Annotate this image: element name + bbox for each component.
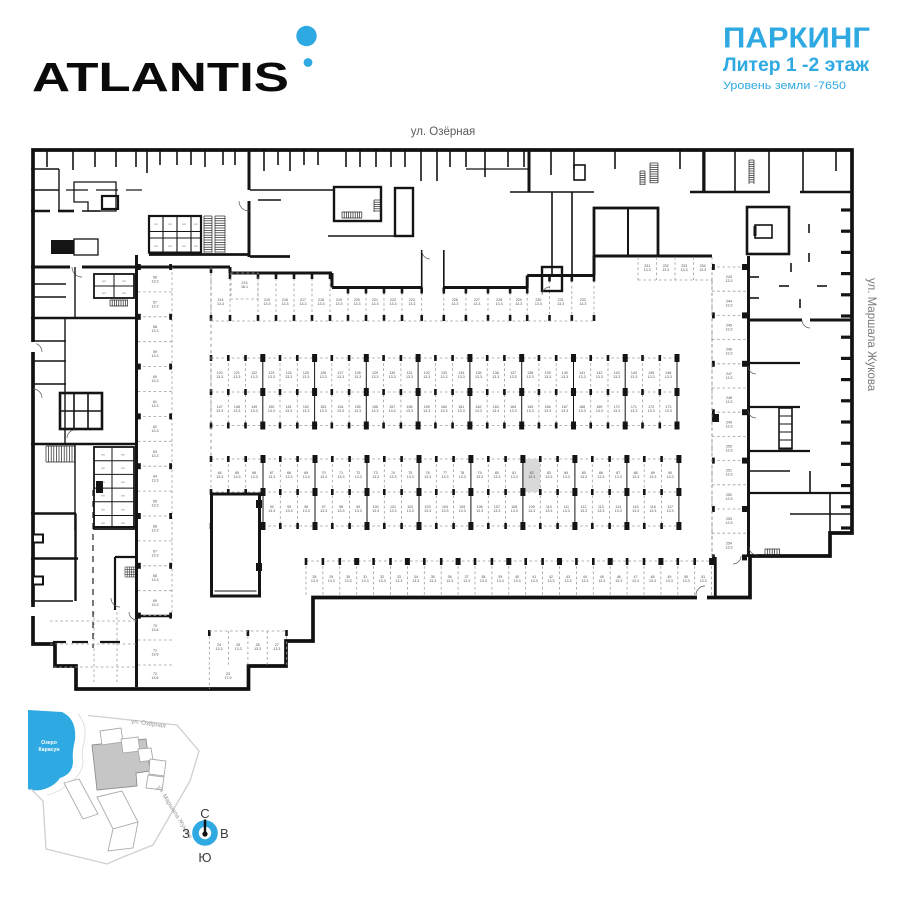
svg-text:13.3: 13.3 [216,375,223,379]
svg-text:13.3: 13.3 [251,409,258,413]
svg-text:13.3: 13.3 [514,579,521,583]
svg-text:кл: кл [183,222,186,226]
svg-text:13.3: 13.3 [510,375,517,379]
svg-text:ул. Маршала Жукова: ул. Маршала Жукова [865,278,877,392]
svg-text:13.3: 13.3 [535,302,542,306]
svg-text:13.3: 13.3 [496,302,503,306]
svg-text:13.3: 13.3 [511,509,518,513]
svg-text:13.3: 13.3 [286,509,293,513]
svg-text:13.3: 13.3 [613,375,620,379]
svg-text:13.3: 13.3 [580,509,587,513]
svg-text:13.3: 13.3 [355,475,362,479]
svg-text:13.3: 13.3 [251,475,258,479]
svg-text:13.3: 13.3 [563,509,570,513]
svg-text:13.3: 13.3 [216,475,223,479]
svg-text:13.3: 13.3 [152,529,159,533]
svg-text:13.3: 13.3 [234,475,241,479]
svg-text:13.3: 13.3 [355,509,362,513]
svg-text:13.3: 13.3 [476,509,483,513]
svg-text:13.3: 13.3 [152,354,159,358]
svg-text:13.3: 13.3 [667,475,674,479]
svg-text:13.3: 13.3 [152,279,159,283]
svg-text:13.3: 13.3 [459,475,466,479]
svg-text:13.3: 13.3 [320,475,327,479]
svg-text:В: В [220,826,229,841]
svg-text:13.3: 13.3 [531,579,538,583]
svg-text:13.3: 13.3 [544,375,551,379]
svg-text:кл: кл [122,291,125,295]
svg-text:13.3: 13.3 [581,579,588,583]
svg-text:13.3: 13.3 [648,375,655,379]
svg-text:13.3: 13.3 [463,579,470,583]
svg-text:13.3: 13.3 [441,409,448,413]
svg-text:13.3: 13.3 [451,302,458,306]
svg-text:13.3: 13.3 [303,475,310,479]
svg-text:13.3: 13.3 [390,475,397,479]
svg-text:13.3: 13.3 [338,475,345,479]
svg-text:Ю: Ю [198,850,211,865]
svg-text:13.3: 13.3 [726,376,733,380]
svg-text:кл: кл [121,507,124,511]
svg-text:13.3: 13.3 [336,302,343,306]
svg-text:13.3: 13.3 [726,521,733,525]
svg-text:13.3: 13.3 [389,375,396,379]
svg-text:13.3: 13.3 [497,579,504,583]
svg-text:13.3: 13.3 [424,475,431,479]
svg-text:13.3: 13.3 [345,579,352,583]
svg-text:13.3: 13.3 [152,404,159,408]
svg-text:13.3: 13.3 [320,509,327,513]
svg-text:13.3: 13.3 [475,375,482,379]
svg-text:13.3: 13.3 [545,475,552,479]
svg-text:кл: кл [183,244,186,248]
svg-text:кл: кл [101,494,104,498]
svg-text:13.3: 13.3 [268,409,275,413]
svg-text:13.3: 13.3 [407,475,414,479]
svg-text:17.9: 17.9 [225,676,232,680]
svg-text:13.3: 13.3 [338,509,345,513]
svg-text:Озеро: Озеро [41,740,57,746]
svg-text:13.3: 13.3 [311,579,318,583]
svg-text:13.3: 13.3 [492,375,499,379]
svg-text:13.3: 13.3 [273,647,280,651]
svg-text:13.3: 13.3 [528,475,535,479]
svg-text:13.3: 13.3 [254,647,261,651]
svg-text:13.3: 13.3 [152,553,159,557]
svg-text:13.3: 13.3 [216,409,223,413]
svg-text:13.3: 13.3 [493,475,500,479]
svg-text:13.3: 13.3 [152,504,159,508]
svg-text:кл: кл [101,453,104,457]
svg-text:ул. Озёрная: ул. Озёрная [411,126,476,138]
svg-text:13.3: 13.3 [152,479,159,483]
svg-text:13.3: 13.3 [597,509,604,513]
svg-text:13.3: 13.3 [598,579,605,583]
svg-text:13.3: 13.3 [726,303,733,307]
svg-text:13.3: 13.3 [648,409,655,413]
svg-text:13.3: 13.3 [726,424,733,428]
svg-text:кл: кл [101,521,104,525]
svg-text:13.3: 13.3 [649,579,656,583]
svg-text:13.3: 13.3 [649,509,656,513]
svg-text:13.3: 13.3 [372,475,379,479]
svg-text:кл: кл [122,279,125,283]
svg-text:13.3: 13.3 [665,409,672,413]
svg-text:13.3: 13.3 [473,302,480,306]
svg-text:13.3: 13.3 [372,509,379,513]
svg-text:13.3: 13.3 [328,579,335,583]
svg-text:13.3: 13.3 [372,302,379,306]
svg-text:13.3: 13.3 [726,449,733,453]
svg-text:13.6: 13.6 [152,653,159,657]
svg-text:13.3: 13.3 [557,302,564,306]
svg-text:13.3: 13.3 [683,579,690,583]
svg-text:13.3: 13.3 [286,475,293,479]
svg-text:13.3: 13.3 [318,302,325,306]
svg-text:13.3: 13.3 [492,409,499,413]
svg-text:13.3: 13.3 [216,647,223,651]
svg-text:13.3: 13.3 [527,375,534,379]
svg-text:13.3: 13.3 [615,579,622,583]
svg-text:кл: кл [101,480,104,484]
svg-text:13.3: 13.3 [528,509,535,513]
svg-text:ПАРКИНГ: ПАРКИНГ [723,23,870,55]
svg-text:13.3: 13.3 [320,409,327,413]
svg-text:13.3: 13.3 [662,268,669,272]
svg-text:13.3: 13.3 [580,475,587,479]
svg-text:13.3: 13.3 [389,409,396,413]
svg-text:13.3: 13.3 [726,497,733,501]
svg-text:13.3: 13.3 [630,375,637,379]
svg-text:13.3: 13.3 [379,579,386,583]
svg-text:13.3: 13.3 [726,400,733,404]
svg-text:13.3: 13.3 [476,475,483,479]
svg-text:13.3: 13.3 [665,375,672,379]
svg-text:13.3: 13.3 [441,375,448,379]
svg-text:13.3: 13.3 [233,409,240,413]
svg-text:13.3: 13.3 [632,475,639,479]
svg-text:З: З [182,826,190,841]
svg-text:кл: кл [121,480,124,484]
svg-text:13.3: 13.3 [337,409,344,413]
svg-text:13.3: 13.3 [579,302,586,306]
svg-text:13.3: 13.3 [726,352,733,356]
svg-text:13.3: 13.3 [565,579,572,583]
svg-text:13.3: 13.3 [510,409,517,413]
svg-text:13.3: 13.3 [700,579,707,583]
svg-text:кл: кл [101,507,104,511]
svg-text:13.3: 13.3 [152,329,159,333]
svg-text:13.3: 13.3 [152,379,159,383]
svg-text:13.3: 13.3 [515,302,522,306]
svg-text:13.3: 13.3 [423,409,430,413]
svg-text:кл: кл [169,222,172,226]
svg-text:13.3: 13.3 [152,429,159,433]
svg-text:13.3: 13.3 [152,304,159,308]
svg-text:13.3: 13.3 [233,375,240,379]
svg-text:13.3: 13.3 [459,509,466,513]
svg-text:13.3: 13.3 [632,579,639,583]
svg-text:кл: кл [101,466,104,470]
svg-text:13.3: 13.3 [545,509,552,513]
svg-text:Карасун: Карасун [38,747,59,753]
svg-text:13.3: 13.3 [264,302,271,306]
svg-text:13.3: 13.3 [597,475,604,479]
svg-text:13.3: 13.3 [320,375,327,379]
svg-text:ATLANTIS: ATLANTIS [32,54,289,100]
svg-text:13.3: 13.3 [152,578,159,582]
svg-text:13.3: 13.3 [561,375,568,379]
svg-text:13.3: 13.3 [561,409,568,413]
svg-text:13.3: 13.3 [300,302,307,306]
svg-text:13.3: 13.3 [285,375,292,379]
svg-text:13.3: 13.3 [726,328,733,332]
svg-text:13.3: 13.3 [726,279,733,283]
svg-text:13.3: 13.3 [423,375,430,379]
svg-text:13.3: 13.3 [666,579,673,583]
svg-text:кл: кл [121,494,124,498]
svg-text:13.3: 13.3 [493,509,500,513]
svg-text:13.3: 13.3 [480,579,487,583]
svg-text:13.3: 13.3 [681,268,688,272]
svg-text:кл: кл [121,466,124,470]
svg-text:13.3: 13.3 [548,579,555,583]
svg-text:13.3: 13.3 [303,509,310,513]
svg-text:13.3: 13.3 [615,509,622,513]
svg-text:13.3: 13.3 [235,647,242,651]
svg-text:13.3: 13.3 [372,409,379,413]
svg-text:13.3: 13.3 [615,475,622,479]
svg-text:кл: кл [155,222,158,226]
svg-text:13.3: 13.3 [285,409,292,413]
svg-text:кл: кл [155,244,158,248]
svg-text:13.3: 13.3 [726,473,733,477]
svg-text:13.3: 13.3 [630,409,637,413]
svg-text:13.3: 13.3 [699,268,706,272]
svg-text:13.3: 13.3 [596,409,603,413]
svg-text:13.3: 13.3 [390,509,397,513]
svg-text:13.3: 13.3 [644,268,651,272]
svg-text:кл: кл [195,222,198,226]
svg-text:13.3: 13.3 [302,409,309,413]
svg-text:С: С [200,806,209,821]
svg-text:кл: кл [121,453,124,457]
svg-text:13.3: 13.3 [407,509,414,513]
svg-text:13.3: 13.3 [429,579,436,583]
svg-text:кл: кл [195,244,198,248]
svg-text:13.3: 13.3 [475,409,482,413]
svg-text:13.3: 13.3 [282,302,289,306]
svg-text:13.3: 13.3 [667,509,674,513]
svg-text:13.3: 13.3 [152,454,159,458]
svg-text:18.1: 18.1 [241,285,248,289]
svg-text:13.3: 13.3 [354,302,361,306]
svg-text:13.3: 13.3 [442,475,449,479]
svg-text:13.3: 13.3 [268,509,275,513]
svg-text:13.3: 13.3 [632,509,639,513]
svg-text:13.3: 13.3 [544,409,551,413]
svg-text:13.3: 13.3 [649,475,656,479]
svg-text:13.3: 13.3 [563,475,570,479]
svg-text:13.3: 13.3 [268,475,275,479]
svg-text:13.6: 13.6 [152,628,159,632]
svg-text:13.3: 13.3 [406,409,413,413]
svg-text:13.3: 13.3 [354,409,361,413]
svg-text:Литер 1 -2 этаж: Литер 1 -2 этаж [723,54,869,76]
svg-text:13.3: 13.3 [337,375,344,379]
svg-text:13.3: 13.3 [268,375,275,379]
svg-text:13.3: 13.3 [726,545,733,549]
svg-text:13.3: 13.3 [354,375,361,379]
svg-text:кл: кл [169,244,172,248]
svg-text:13.3: 13.3 [390,302,397,306]
svg-text:13.3: 13.3 [613,409,620,413]
svg-text:13.3: 13.3 [395,579,402,583]
svg-text:13.3: 13.3 [458,409,465,413]
svg-text:кл: кл [102,279,105,283]
svg-text:13.3: 13.3 [217,302,224,306]
svg-text:13.3: 13.3 [579,409,586,413]
svg-text:13.3: 13.3 [372,375,379,379]
svg-text:13.3: 13.3 [579,375,586,379]
svg-text:13.3: 13.3 [424,509,431,513]
svg-text:13.3: 13.3 [527,409,534,413]
svg-text:13.3: 13.3 [596,375,603,379]
svg-text:кл: кл [102,291,105,295]
svg-text:13.3: 13.3 [362,579,369,583]
svg-text:13.3: 13.3 [251,375,258,379]
svg-text:Уровень земли -7650: Уровень земли -7650 [723,80,846,92]
svg-text:13.3: 13.3 [446,579,453,583]
svg-text:13.3: 13.3 [442,509,449,513]
svg-text:13.3: 13.3 [458,375,465,379]
svg-text:13.3: 13.3 [302,375,309,379]
svg-text:13.3: 13.3 [412,579,419,583]
svg-text:13.6: 13.6 [152,676,159,680]
svg-text:13.3: 13.3 [406,375,413,379]
svg-text:13.3: 13.3 [152,603,159,607]
svg-text:кл: кл [121,521,124,525]
svg-text:13.3: 13.3 [408,302,415,306]
svg-text:13.3: 13.3 [511,475,518,479]
